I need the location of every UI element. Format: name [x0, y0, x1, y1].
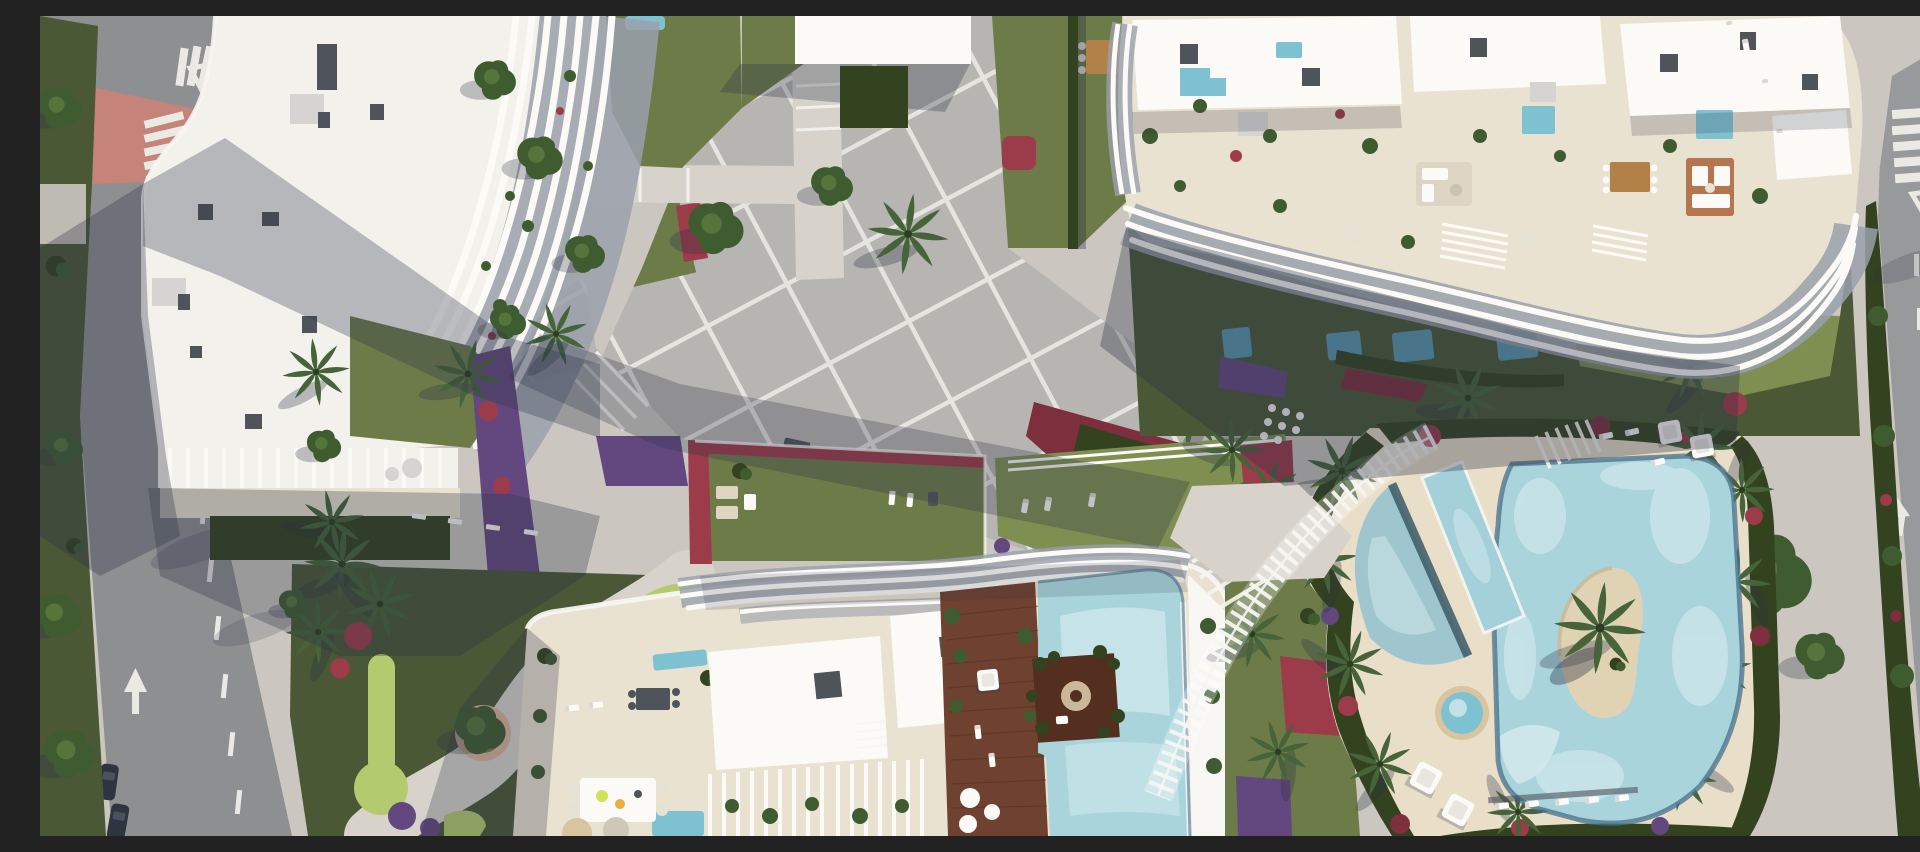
pavilion-roof [795, 16, 971, 64]
aerial-render: Aerial top-down rendering of a modern wh… [40, 16, 1920, 836]
tall-hedge [1068, 16, 1078, 249]
sofa-corner [1416, 162, 1472, 206]
aerial-render-canvas [40, 16, 1920, 836]
round-spa [1435, 686, 1489, 740]
egg-chair [1519, 231, 1537, 249]
hedge-cube [840, 66, 908, 128]
egg-chair [1344, 225, 1362, 243]
main-lagoon-pool [1494, 456, 1742, 823]
plunge-pool [1276, 42, 1302, 58]
deck-and-pool-south [940, 570, 1190, 836]
lounge-rug [1686, 158, 1734, 216]
spa-platform [1026, 645, 1125, 743]
roof-dining [1603, 162, 1658, 194]
white-dining-table [568, 778, 668, 822]
plunge-pool [1522, 106, 1555, 134]
